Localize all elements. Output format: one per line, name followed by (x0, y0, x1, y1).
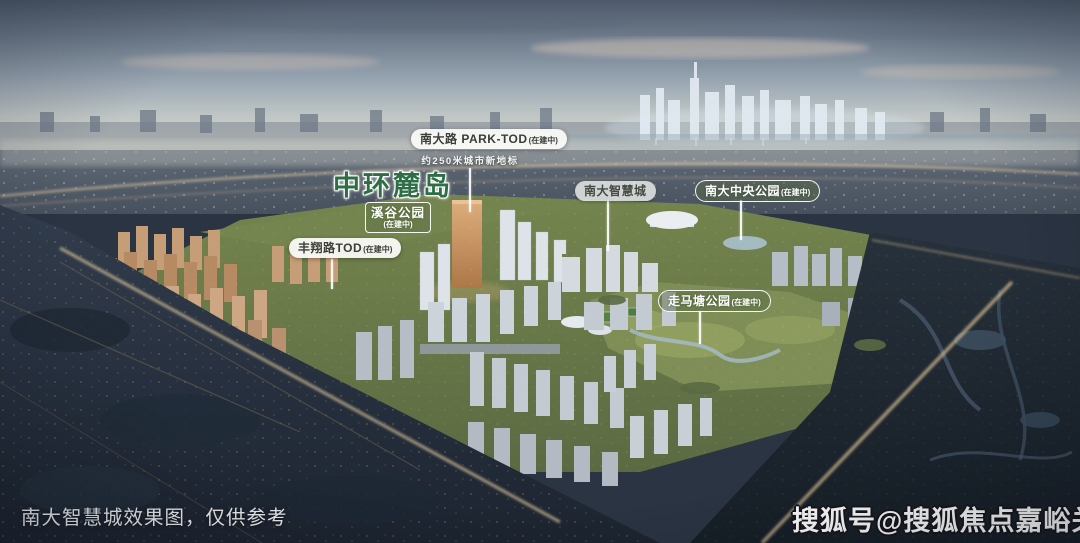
label-fengxiang-tod: 丰翔路TOD (在建中) (289, 238, 401, 258)
label-title: 南大中央公园 (705, 185, 780, 197)
label-status: (在建中) (781, 189, 810, 197)
label-zoumatang-park: 走马塘公园 (在建中) (658, 290, 771, 312)
label-xigu-park: 溪谷公园 (在建中) (365, 202, 431, 233)
label-nandalu-park-tod: 南大路 PARK-TOD (在建中) (411, 129, 567, 149)
sohu-watermark: 搜狐号@搜狐焦点嘉峪关站 (792, 499, 1080, 538)
label-status: (在建中) (529, 137, 558, 145)
leader-line-fengxiang-tod (331, 259, 333, 289)
leader-line-park-tod (469, 168, 471, 212)
aerial-render-screenshot: 南大路 PARK-TOD (在建中) 约250米城市新地标 中环麓岛 溪谷公园 … (0, 0, 1080, 543)
label-title: 溪谷公园 (371, 206, 425, 220)
render-disclaimer-caption: 南大智慧城效果图，仅供参考 (21, 501, 288, 530)
label-status: (在建中) (371, 220, 425, 229)
leader-line-nanda-smart-city (607, 201, 609, 251)
leader-line-central-park (740, 200, 742, 240)
label-title: 走马塘公园 (668, 295, 731, 307)
label-title: 丰翔路TOD (298, 242, 362, 254)
label-zhonghuan-ludao: 中环麓岛 (333, 164, 453, 203)
label-nanda-central-park: 南大中央公园 (在建中) (695, 180, 820, 202)
label-title: 南大路 PARK-TOD (420, 133, 528, 145)
label-nanda-smart-city: 南大智慧城 (575, 181, 656, 201)
leader-line-zoumatang-park (699, 311, 701, 344)
annotation-overlay: 南大路 PARK-TOD (在建中) 约250米城市新地标 中环麓岛 溪谷公园 … (0, 0, 1080, 543)
label-title: 南大智慧城 (584, 185, 647, 197)
label-status: (在建中) (363, 246, 392, 254)
label-status: (在建中) (732, 299, 761, 307)
